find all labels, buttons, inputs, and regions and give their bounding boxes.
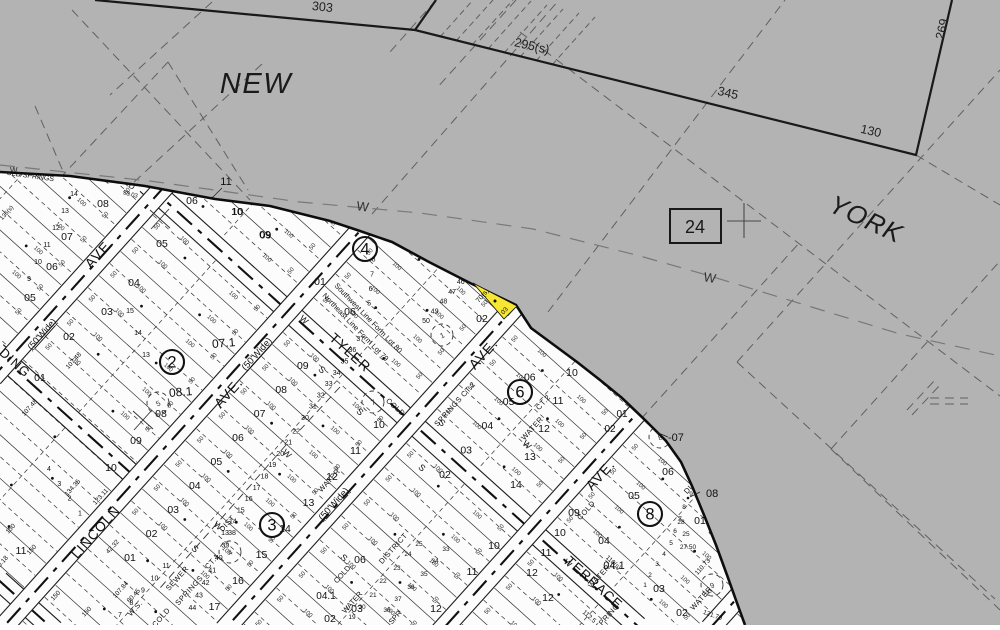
svg-text:43: 43	[195, 593, 203, 600]
svg-text:10: 10	[34, 259, 42, 266]
svg-text:22: 22	[379, 578, 387, 585]
svg-text:7: 7	[678, 516, 682, 523]
svg-text:01: 01	[34, 372, 46, 384]
svg-text:9: 9	[27, 276, 31, 283]
svg-text:03: 03	[167, 504, 179, 516]
svg-text:33: 33	[325, 381, 333, 388]
svg-text:11: 11	[162, 563, 169, 570]
svg-text:6: 6	[673, 528, 677, 535]
svg-text:12: 12	[526, 567, 538, 579]
svg-text:04: 04	[189, 480, 201, 492]
svg-text:14: 14	[510, 479, 522, 491]
svg-text:6: 6	[515, 384, 524, 402]
svg-text:24: 24	[685, 217, 705, 237]
svg-text:03: 03	[653, 583, 665, 595]
svg-text:05: 05	[156, 238, 168, 250]
svg-text:08: 08	[275, 384, 287, 396]
svg-text:19: 19	[269, 462, 277, 469]
svg-text:18: 18	[261, 474, 269, 481]
svg-text:15: 15	[256, 549, 268, 561]
svg-text:303: 303	[311, 0, 333, 15]
svg-text:08: 08	[97, 198, 109, 210]
svg-text:11: 11	[541, 547, 552, 559]
svg-text:11: 11	[553, 395, 564, 407]
svg-text:08.1: 08.1	[168, 384, 193, 400]
svg-text:37: 37	[394, 596, 402, 603]
svg-text:35: 35	[420, 571, 428, 578]
svg-text:3: 3	[57, 481, 61, 488]
svg-text:32: 32	[317, 392, 325, 399]
svg-text:10: 10	[232, 206, 244, 218]
svg-text:9: 9	[141, 588, 145, 595]
svg-text:5: 5	[367, 301, 371, 308]
svg-text:21: 21	[369, 592, 377, 599]
svg-text:13: 13	[303, 497, 315, 509]
svg-text:14: 14	[70, 191, 78, 198]
svg-text:11: 11	[220, 176, 231, 188]
svg-text:19: 19	[348, 614, 356, 621]
svg-text:17: 17	[253, 485, 261, 492]
svg-text:03: 03	[101, 306, 113, 318]
svg-text:23: 23	[393, 565, 401, 572]
svg-text:2: 2	[648, 572, 652, 579]
svg-text:8: 8	[682, 504, 686, 511]
svg-text:10: 10	[151, 575, 159, 582]
svg-text:24: 24	[404, 551, 412, 558]
svg-text:02: 02	[604, 424, 616, 435]
svg-text:09: 09	[297, 360, 309, 372]
svg-text:5: 5	[669, 540, 673, 547]
svg-text:04.1: 04.1	[316, 591, 336, 602]
svg-text:15: 15	[237, 507, 245, 514]
svg-text:1: 1	[643, 582, 647, 589]
svg-text:06: 06	[354, 554, 366, 566]
svg-text:-07: -07	[668, 432, 684, 444]
svg-text:07: 07	[61, 231, 73, 243]
svg-text:02: 02	[476, 313, 488, 325]
svg-text:13: 13	[61, 208, 69, 215]
svg-text:3: 3	[267, 517, 276, 535]
svg-text:05: 05	[211, 456, 223, 468]
svg-text:17: 17	[209, 601, 221, 613]
svg-text:07.1: 07.1	[211, 335, 236, 351]
svg-text:04: 04	[482, 420, 494, 432]
svg-text:7: 7	[118, 612, 122, 619]
svg-text:02: 02	[63, 331, 75, 343]
svg-text:34: 34	[333, 370, 341, 377]
svg-text:4: 4	[662, 551, 666, 558]
svg-text:16: 16	[232, 575, 244, 587]
svg-text:4: 4	[47, 466, 51, 473]
svg-text:10: 10	[488, 540, 500, 552]
svg-text:8: 8	[645, 506, 654, 524]
svg-text:NEW: NEW	[220, 68, 293, 100]
svg-text:07: 07	[254, 408, 266, 420]
svg-text:50: 50	[422, 318, 430, 325]
svg-text:05: 05	[24, 292, 36, 304]
svg-text:02: 02	[146, 528, 158, 540]
svg-text:13: 13	[524, 451, 536, 463]
svg-text:31: 31	[309, 404, 317, 411]
svg-text:33: 33	[442, 546, 450, 553]
svg-text:08: 08	[706, 488, 718, 500]
svg-text:48: 48	[440, 299, 448, 306]
svg-text:05: 05	[628, 490, 640, 502]
svg-text:25: 25	[415, 541, 423, 548]
svg-text:13: 13	[142, 352, 150, 359]
svg-text:02: 02	[324, 613, 336, 625]
svg-text:44: 44	[189, 605, 197, 612]
svg-text:11: 11	[43, 242, 50, 249]
svg-text:01: 01	[616, 409, 628, 420]
svg-text:4: 4	[360, 241, 369, 259]
svg-text:16: 16	[245, 496, 253, 503]
svg-text:09: 09	[130, 435, 142, 447]
svg-text:12: 12	[542, 592, 554, 604]
svg-text:01: 01	[314, 276, 326, 288]
svg-text:10: 10	[566, 367, 578, 379]
svg-text:38: 38	[228, 530, 236, 537]
svg-text:2: 2	[167, 354, 176, 372]
svg-text:1: 1	[78, 510, 82, 517]
svg-text:06: 06	[232, 432, 244, 444]
svg-text:7: 7	[370, 271, 374, 278]
svg-text:10: 10	[554, 527, 566, 539]
svg-text:01: 01	[124, 552, 136, 564]
svg-text:03: 03	[460, 445, 472, 457]
svg-text:3: 3	[655, 561, 659, 568]
svg-text:06: 06	[662, 466, 674, 478]
svg-text:15: 15	[126, 308, 134, 315]
svg-text:09: 09	[260, 230, 272, 242]
svg-text:14: 14	[134, 330, 142, 337]
svg-text:20: 20	[358, 604, 366, 611]
svg-text:06: 06	[46, 261, 58, 273]
svg-text:10: 10	[105, 462, 117, 474]
svg-text:22: 22	[292, 428, 300, 435]
svg-text:25: 25	[682, 531, 690, 538]
svg-text:11: 11	[467, 566, 478, 578]
